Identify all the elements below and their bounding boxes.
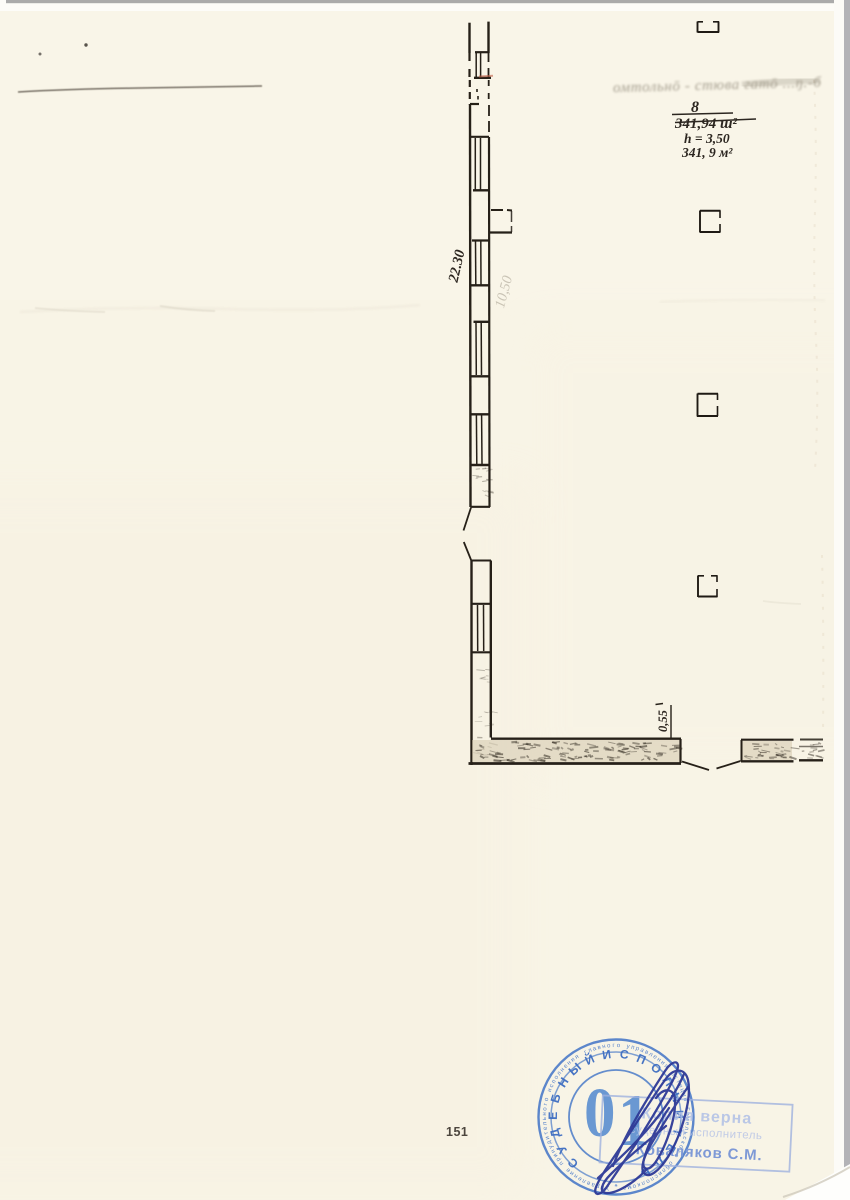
svg-text:*: *	[614, 1179, 617, 1188]
svg-text:341,94 ш²: 341,94 ш²	[674, 116, 737, 132]
svg-text:151: 151	[446, 1125, 468, 1139]
svg-text:Е: Е	[546, 1112, 560, 1120]
svg-text:0,55: 0,55	[656, 710, 670, 732]
svg-text:341, 9 м²: 341, 9 м²	[681, 145, 733, 160]
svg-text:h = 3,50: h = 3,50	[684, 131, 730, 146]
